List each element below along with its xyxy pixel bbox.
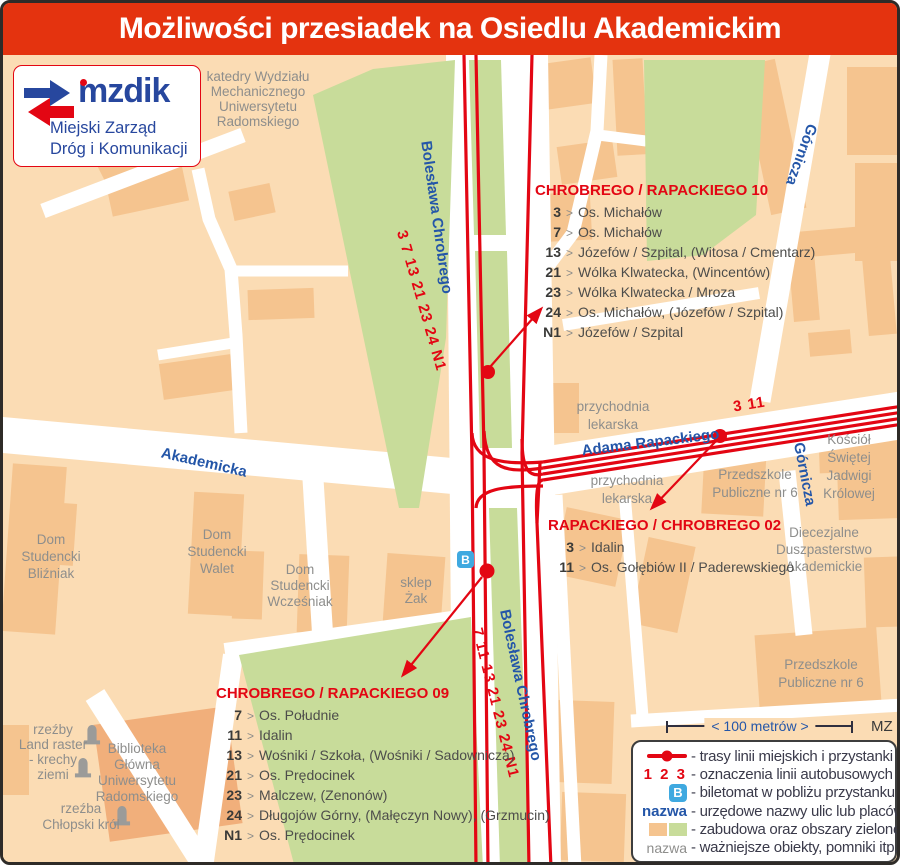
svg-text:przychodnia: przychodnia	[577, 399, 650, 414]
svg-text:przychodnia: przychodnia	[591, 473, 664, 488]
svg-text:lekarska: lekarska	[602, 491, 653, 506]
stop-name: RAPACKIEGO / CHROBREGO 02	[548, 516, 794, 536]
stop-name: CHROBREGO / RAPACKIEGO 09	[216, 684, 550, 704]
stop-line-row: N1>Os. Prędocinek	[216, 826, 550, 846]
svg-text:Dom: Dom	[203, 527, 232, 542]
map-credit: MZ	[871, 718, 893, 735]
object-name-sample-icon: nazwa	[639, 840, 691, 856]
bus-line-numbers-icon: 1 2 3	[639, 766, 691, 783]
stop-list-chrobrego-rapackiego-10: CHROBREGO / RAPACKIEGO 10 3>Os. Michałów…	[535, 181, 815, 343]
svg-text:Publiczne nr 6: Publiczne nr 6	[712, 485, 798, 500]
svg-text:- krechy: - krechy	[29, 752, 77, 767]
stop-line-row: 13>Wośniki / Szkoła, (Wośniki / Sadownic…	[216, 746, 550, 766]
svg-text:Uniwersytetu: Uniwersytetu	[219, 99, 297, 114]
svg-text:Żak: Żak	[405, 591, 428, 606]
stop-line-row: 21>Wólka Klwatecka, (Wincentów)	[535, 263, 815, 283]
svg-text:Studencki: Studencki	[21, 549, 80, 564]
svg-text:Radomskiego: Radomskiego	[217, 114, 300, 129]
area-swatches-icon	[639, 823, 691, 836]
svg-text:lekarska: lekarska	[588, 417, 639, 432]
stop-line-row: 7>Os. Południe	[216, 706, 550, 726]
stop-marker-chrobrego-09	[480, 564, 495, 579]
stop-line-row: N1>Józefów / Szpital	[535, 323, 815, 343]
stop-line-row: 3>Idalin	[548, 538, 794, 558]
svg-text:Dom: Dom	[37, 532, 66, 547]
stop-line-row: 23>Malczew, (Zenonów)	[216, 786, 550, 806]
route-line-with-stop-icon	[639, 754, 691, 758]
legend-row-line-numbers: 1 2 3 - oznaczenia linii autobusowych	[639, 765, 887, 783]
svg-text:rzeźba: rzeźba	[61, 801, 102, 816]
svg-text:Uniwersytetu: Uniwersytetu	[98, 773, 176, 788]
legend-row-objects: nazwa - ważniejsze obiekty, pomniki itp.	[639, 839, 887, 857]
svg-text:Kościół: Kościół	[827, 432, 871, 447]
svg-text:Land raster: Land raster	[19, 737, 88, 752]
logo-brand-text: mzdik	[78, 72, 169, 111]
stop-line-row: 24>Os. Michałów, (Józefów / Szpital)	[535, 303, 815, 323]
svg-text:Walet: Walet	[200, 561, 234, 576]
stop-line-row: 24>Długojów Górny, (Małęczyn Nowy), (Grz…	[216, 806, 550, 826]
map-poster: B Bolesława Chrobrego Bolesława Chrobreg…	[0, 0, 900, 865]
mzdik-logo-box: mzdik Miejski Zarząd Dróg i Komunikacji	[13, 65, 201, 167]
svg-text:rzeźby: rzeźby	[33, 722, 73, 737]
svg-text:Akademickie: Akademickie	[786, 559, 863, 574]
legend-row-ticket-machine: B - biletomat w pobliżu przystanku	[639, 784, 887, 802]
street-name-sample-icon: nazwa	[639, 803, 691, 820]
stop-line-row: 13>Józefów / Szpital, (Witosa / Cmentarz…	[535, 243, 815, 263]
legend-row-areas: - zabudowa oraz obszary zielone	[639, 821, 887, 839]
stop-line-row: 7>Os. Michałów	[535, 223, 815, 243]
svg-text:Świętej: Świętej	[827, 450, 871, 465]
place-label-katedry: katedry Wydziału Mechanicznego Uniwersyt…	[207, 69, 310, 129]
stop-marker-chrobrego-10	[481, 365, 495, 379]
stop-list-chrobrego-rapackiego-09: CHROBREGO / RAPACKIEGO 09 7>Os. Południe…	[216, 684, 550, 846]
svg-text:Główna: Główna	[114, 757, 160, 772]
stop-line-row: 3>Os. Michałów	[535, 203, 815, 223]
svg-text:ziemi: ziemi	[37, 767, 69, 782]
stop-list-rapackiego-chrobrego-02: RAPACKIEGO / CHROBREGO 02 3>Idalin 11>Os…	[548, 516, 794, 578]
svg-text:B: B	[461, 553, 470, 567]
stop-line-row: 21>Os. Prędocinek	[216, 766, 550, 786]
ticket-machine-legend-icon: B	[639, 784, 691, 802]
scale-label: < 100 metrów >	[704, 718, 815, 734]
svg-text:Mechanicznego: Mechanicznego	[211, 84, 306, 99]
svg-text:Jadwigi: Jadwigi	[826, 468, 871, 483]
logo-i-dot	[80, 79, 87, 86]
stop-line-row: 23>Wólka Klwatecka / Mroza	[535, 283, 815, 303]
stop-line-row: 11>Idalin	[216, 726, 550, 746]
place-label-sklep-zak: sklep Żak	[400, 575, 432, 606]
svg-text:Radomskiego: Radomskiego	[96, 789, 179, 804]
legend-row-street-names: nazwa - urzędowe nazwy ulic lub placów	[639, 802, 887, 820]
svg-text:sklep: sklep	[400, 575, 432, 590]
svg-text:Studencki: Studencki	[187, 544, 246, 559]
svg-text:Biblioteka: Biblioteka	[108, 741, 167, 756]
svg-text:Publiczne nr 6: Publiczne nr 6	[778, 675, 864, 690]
stop-line-row: 11>Os. Gołębiów II / Paderewskiego	[548, 558, 794, 578]
logo-subtitle: Miejski Zarząd Dróg i Komunikacji	[50, 118, 188, 160]
svg-text:Diecezjalne: Diecezjalne	[789, 525, 859, 540]
place-label-biblioteka: Biblioteka Główna Uniwersytetu Radomskie…	[96, 741, 179, 804]
svg-text:katedry Wydziału: katedry Wydziału	[207, 69, 310, 84]
legend-box: - trasy linii miejskich i przystanki 1 2…	[631, 740, 897, 863]
svg-text:Wcześniak: Wcześniak	[267, 594, 333, 609]
svg-text:Przedszkole: Przedszkole	[718, 467, 792, 482]
svg-text:Przedszkole: Przedszkole	[784, 657, 858, 672]
svg-text:Chłopski król: Chłopski król	[42, 817, 119, 832]
svg-text:Bliźniak: Bliźniak	[28, 566, 75, 581]
stop-name: CHROBREGO / RAPACKIEGO 10	[535, 181, 815, 201]
legend-row-routes: - trasy linii miejskich i przystanki	[639, 747, 887, 765]
ticket-machine-icon: B	[457, 551, 474, 568]
svg-text:Studencki: Studencki	[270, 578, 329, 593]
svg-text:Królowej: Królowej	[823, 486, 875, 501]
page-title: Możliwości przesiadek na Osiedlu Akademi…	[3, 3, 897, 55]
svg-text:Dom: Dom	[286, 562, 315, 577]
